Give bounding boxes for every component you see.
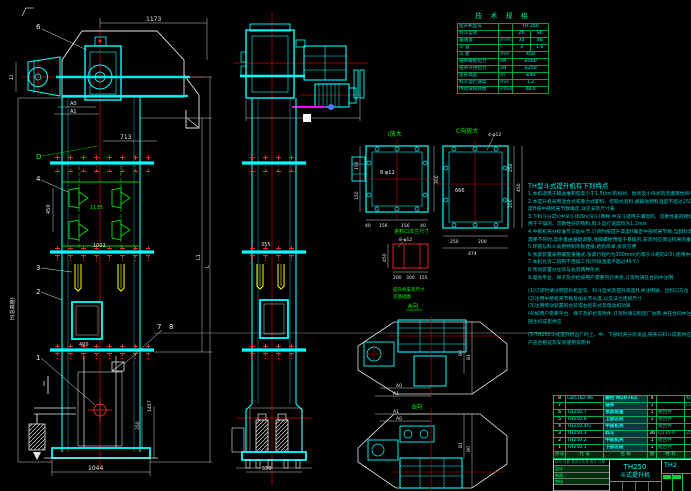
callout-1: 1 bbox=[36, 354, 40, 362]
note-line: 7.本机允许二班制不连续工作(环境温度不超过40℃) bbox=[528, 259, 691, 267]
dim: 250 bbox=[450, 239, 459, 245]
spec-table-title: 技 术 规 格 bbox=[457, 11, 549, 23]
dim-1044: 1044 bbox=[88, 465, 103, 472]
dim: 200 bbox=[508, 199, 514, 208]
dim-12: 12 bbox=[9, 74, 15, 80]
note-line: (4)如用户需要平台、梯子及护栏等附件,订货时请与制造厂协商,并在合同中注明,附… bbox=[528, 311, 691, 319]
install-note-2: 见基础图 bbox=[393, 293, 411, 300]
section-mark-i: I bbox=[43, 380, 45, 388]
note-line: 度H按中部机壳节数确定,详见安装尺寸表 bbox=[528, 206, 691, 214]
spec-row: 输送量m³/h3548 bbox=[458, 38, 549, 45]
feed-flange-detail: 进料口法兰尺寸 8-φ12 200 300 155 450 提升机安装尺寸 见基… bbox=[382, 228, 429, 300]
roughness-icon bbox=[22, 8, 34, 16]
note-line: 需要不符时,其余量由基础调整,地脚螺栓预埋于基础内,安装时应保证机壳的垂直度 bbox=[528, 237, 691, 245]
dim-450: 450 bbox=[46, 204, 52, 214]
sign-row-empty bbox=[554, 485, 609, 491]
parts-row: 6TH250.7张紧装置1组合件 bbox=[554, 410, 691, 417]
product-model: TH250 bbox=[609, 463, 661, 472]
bucket bbox=[257, 264, 284, 289]
spec-row: 提升机型号TH 250 bbox=[458, 24, 549, 31]
spec-row: 料斗运行速度m/s1.2 bbox=[458, 80, 549, 87]
detail-i: I放大 8-φ12 40 156 156 40 150 150 300 bbox=[354, 130, 440, 229]
dim: B1 bbox=[458, 442, 464, 448]
dim-l: L bbox=[205, 265, 211, 268]
dim: 300 bbox=[434, 175, 440, 184]
title-block-number-cell: TH2 bbox=[661, 460, 691, 491]
spec-row: 斗 距mm450 bbox=[458, 52, 549, 59]
feed-flange-bolts: 8-φ12 bbox=[399, 237, 412, 243]
view-c-inner-dim: 666 bbox=[455, 188, 465, 194]
dim-a1: A1 bbox=[70, 109, 77, 115]
title-block-revision-area: 标记 处数 更改文件号 签字 日期 设计 制图 审核 bbox=[554, 460, 610, 491]
spec-table: 技 术 规 格 提升机型号TH 250 料斗型式ZhSh 输送量m³/h3548… bbox=[457, 11, 549, 94]
notes-title: TH型斗式提升机有下列特点 bbox=[528, 181, 691, 191]
plan-a-label: A向 bbox=[408, 302, 418, 310]
dim: A0 bbox=[396, 416, 402, 422]
bucket bbox=[75, 264, 124, 291]
dim: B1 bbox=[466, 354, 472, 360]
note-line: 用于干燥的、流散性好的物料,料斗运行速度均为1.2m/s bbox=[528, 221, 691, 229]
dim: 156 bbox=[379, 223, 388, 229]
dim-1457: 1457 bbox=[147, 400, 153, 412]
dim: 450 bbox=[516, 183, 522, 192]
parts-list: 8GB5782-86螺栓 M20×654标准件 7链条1L= 6TH250.7张… bbox=[553, 395, 691, 459]
dim-a0: A0 bbox=[70, 101, 77, 107]
dim-355: 355 bbox=[261, 242, 271, 248]
parts-row: 5TH250.6上部区段1组合件 bbox=[554, 417, 691, 424]
parts-row: 3TH250.3料斗36Q235-A205 bbox=[554, 431, 691, 438]
dim-1135: 1135 bbox=[90, 205, 103, 211]
note-line: 4.中部机壳分标准节与加长节,订货时按提升高度H确定中部机壳节数,当卸料高度与实… bbox=[528, 229, 691, 237]
note-line: (3)注明传动装置的左装或右装形式及电动机功率 bbox=[528, 303, 691, 311]
title-block: 标记 处数 更改文件号 签字 日期 设计 制图 审核 TH250 斗式提升机 T… bbox=[553, 459, 691, 491]
dim: 300 bbox=[406, 275, 415, 281]
dim: 474 bbox=[468, 251, 477, 257]
note-line: 3.下料斗分Zh(中深斗)和Sh(深斗)两种,中深斗适用于潮湿的、流散性差的物料… bbox=[528, 214, 691, 222]
dim: 150 bbox=[354, 191, 360, 200]
parts-row: 1TH250.1下部区段1组合件 bbox=[554, 445, 691, 452]
spec-row: 链条许用拉力kN≥250 bbox=[458, 66, 549, 73]
callout-8: 8 bbox=[169, 323, 173, 331]
plan-b-label: B向 bbox=[412, 403, 422, 411]
dim-713: 713 bbox=[120, 134, 132, 141]
dim-total-height: H(总高度) bbox=[9, 297, 16, 320]
callout-7: 7 bbox=[157, 323, 161, 331]
dim: B0 bbox=[458, 350, 464, 356]
spec-row: 料斗型式ZhSh bbox=[458, 31, 549, 38]
note-line: 5.环链与料斗采用特制弯板连接,结构简单,拆装方便 bbox=[528, 244, 691, 252]
detail-i-bolts: 8-φ12 bbox=[380, 170, 395, 176]
dim: 155 bbox=[419, 275, 428, 281]
spec-row: 链条破断拉力kN≥560 bbox=[458, 59, 549, 66]
spec-row: 提升高度m≤40 bbox=[458, 73, 549, 80]
spec-row: 斗 容l31.6 bbox=[458, 45, 549, 52]
parts-header-row: 序号代 号名 称数材 料备 注 bbox=[554, 452, 691, 459]
dim-550: 550 bbox=[262, 466, 272, 472]
callout-3: 3 bbox=[36, 264, 40, 272]
plan-view-a: A向 B0 B1 A0 A1 bbox=[358, 302, 507, 398]
dim: 200 bbox=[478, 239, 487, 245]
parts-row: 7链条1L= bbox=[554, 403, 691, 410]
note-line: 9.驱动平台、梯子及护栏按用户需要另行供货,订货时请在合同中注明 bbox=[528, 275, 691, 283]
dim: 40 bbox=[365, 223, 371, 229]
callout-6: 6 bbox=[36, 23, 41, 31]
install-note-1: 提升机安装尺寸 bbox=[393, 286, 425, 293]
note-line: 6.张紧装置采用螺旋重锤式,张紧行程约为300mm(约等于斗距的2/3),使用中… bbox=[528, 252, 691, 260]
dim: A1 bbox=[393, 391, 399, 397]
dim-1002: 1002 bbox=[93, 243, 106, 249]
view-c-bolts: 4-φ12 bbox=[488, 132, 501, 138]
cad-canvas: { "drawing": { "model": "TH250", "produc… bbox=[0, 0, 691, 491]
note-line: (1)订货时请注明提升机型号、料斗型式及提升高度H,并注明进、出料口方位 bbox=[528, 288, 691, 296]
dim: A1 bbox=[393, 409, 399, 415]
callout-4: 4 bbox=[36, 175, 41, 183]
note-line: 产品合格证及安装使用说明书 bbox=[528, 340, 691, 348]
note-line: 1.本机适用于输送堆积密度小于1.5t/m³的粉状、粒状及小块状的无磨琢性和半磨… bbox=[528, 191, 691, 199]
plan-view-b: B向 A1 A0 B1 B0 bbox=[358, 403, 507, 491]
dim-400: 400 bbox=[79, 342, 89, 348]
drawing-number: TH2 bbox=[661, 460, 691, 470]
dim-l1: L1 bbox=[196, 254, 202, 260]
dim: 200 bbox=[393, 275, 402, 281]
feed-flange-label: 进料口法兰尺寸 bbox=[394, 228, 429, 235]
sheet-grid bbox=[661, 473, 691, 491]
dim-350: 350 bbox=[135, 421, 141, 430]
dim: 150 bbox=[354, 161, 360, 170]
detail-i-label: I放大 bbox=[388, 130, 402, 138]
dim-1173: 1173 bbox=[146, 16, 161, 23]
note-line: 8.传动装置分左装与右装两种形式 bbox=[528, 267, 691, 275]
spec-row: 传动滚筒转数r/min48.0 bbox=[458, 87, 549, 94]
title-block-grid bbox=[609, 481, 661, 491]
callout-2: 2 bbox=[36, 288, 40, 296]
view-c-label: C向放大 bbox=[456, 127, 478, 135]
note-line: 随主机成套供应 bbox=[528, 319, 691, 327]
parts-row: 2TH250.2中部机壳1组合件 bbox=[554, 438, 691, 445]
side-view: 355 550 bbox=[232, 12, 368, 486]
dim: 250 bbox=[508, 163, 514, 172]
dim: A0 bbox=[396, 383, 402, 389]
note-line: (5)TH250斗式提升机出厂时上、中、下部机壳分装发运,链条与料斗成套供应,随… bbox=[528, 332, 691, 340]
note-line: (2)注明中部机壳节数及加长节长度,以及法兰连接尺寸 bbox=[528, 296, 691, 304]
dim: B0 bbox=[466, 446, 472, 452]
dim: 450 bbox=[382, 253, 388, 262]
note-line: 2.本提升机采用混合式或重力式卸料、挖取式装料,被输送物料温度不超过250℃,提… bbox=[528, 199, 691, 207]
parts-row: 4TH250.4/5中部机壳组合件 bbox=[554, 424, 691, 431]
view-c: C向放大 4-φ12 666 250 200 474 250 200 450 bbox=[436, 127, 522, 257]
callout-d: D bbox=[36, 153, 41, 161]
notes-block: TH型斗式提升机有下列特点 1.本机适用于输送堆积密度小于1.5t/m³的粉状、… bbox=[528, 181, 691, 393]
product-name: 斗式提升机 bbox=[609, 472, 661, 480]
parts-row: 8GB5782-86螺栓 M20×654标准件 bbox=[554, 396, 691, 403]
